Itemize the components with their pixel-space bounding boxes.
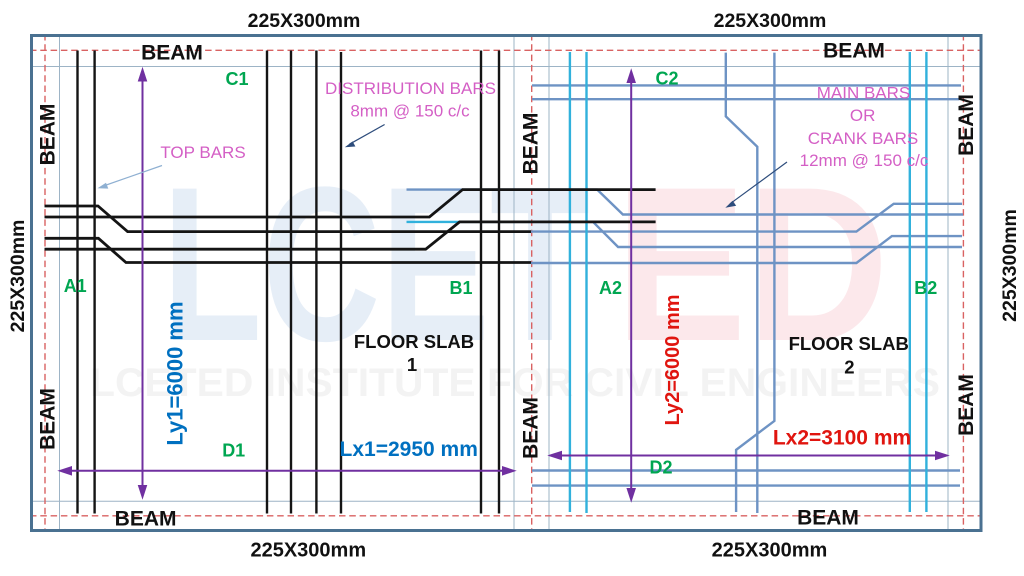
- svg-text:225X300mm: 225X300mm: [7, 220, 29, 333]
- svg-text:D2: D2: [649, 458, 672, 478]
- svg-text:Lx1=2950 mm: Lx1=2950 mm: [340, 438, 478, 461]
- svg-text:8mm @ 150 c/c: 8mm @ 150 c/c: [350, 102, 470, 121]
- svg-text:BEAM: BEAM: [37, 388, 60, 450]
- svg-text:BEAM: BEAM: [823, 40, 885, 63]
- svg-text:FLOOR SLAB: FLOOR SLAB: [789, 333, 909, 354]
- svg-text:LCETED INSTITUTE FOR CIVIL ENG: LCETED INSTITUTE FOR CIVIL ENGINEERS: [90, 361, 940, 405]
- svg-text:MAIN BARS: MAIN BARS: [817, 84, 911, 103]
- svg-text:225X300mm: 225X300mm: [712, 539, 828, 561]
- svg-text:BEAM: BEAM: [520, 397, 543, 459]
- svg-text:BEAM: BEAM: [37, 104, 60, 166]
- svg-text:CRANK BARS: CRANK BARS: [808, 129, 919, 148]
- svg-text:225X300mm: 225X300mm: [250, 539, 366, 561]
- svg-text:A1: A1: [64, 276, 87, 296]
- svg-text:BEAM: BEAM: [520, 113, 543, 175]
- svg-text:12mm @ 150 c/c: 12mm @ 150 c/c: [800, 151, 929, 170]
- svg-text:Lx2=3100 mm: Lx2=3100 mm: [773, 427, 911, 450]
- svg-text:D1: D1: [222, 441, 245, 461]
- svg-text:TOP BARS: TOP BARS: [160, 143, 245, 162]
- svg-text:BEAM: BEAM: [115, 508, 177, 531]
- svg-text:DISTRIBUTION BARS: DISTRIBUTION BARS: [325, 79, 496, 98]
- svg-text:FLOOR SLAB: FLOOR SLAB: [354, 331, 474, 352]
- svg-text:BEAM: BEAM: [141, 42, 203, 65]
- svg-text:1: 1: [407, 354, 417, 375]
- svg-text:OR: OR: [850, 106, 876, 125]
- svg-text:225X300mm: 225X300mm: [248, 10, 361, 32]
- svg-text:Ly1=6000 mm: Ly1=6000 mm: [163, 301, 188, 445]
- svg-text:C1: C1: [225, 69, 248, 89]
- svg-text:BEAM: BEAM: [797, 507, 859, 530]
- svg-text:A2: A2: [599, 278, 622, 298]
- svg-text:2: 2: [844, 357, 854, 378]
- svg-text:BEAM: BEAM: [955, 374, 978, 436]
- svg-text:B2: B2: [914, 278, 937, 298]
- svg-text:Ly2=6000 mm: Ly2=6000 mm: [662, 294, 684, 425]
- svg-text:C2: C2: [655, 69, 678, 89]
- svg-text:225X300mm: 225X300mm: [999, 209, 1021, 322]
- svg-text:225X300mm: 225X300mm: [714, 10, 827, 32]
- svg-text:B1: B1: [449, 278, 472, 298]
- svg-text:BEAM: BEAM: [955, 94, 978, 156]
